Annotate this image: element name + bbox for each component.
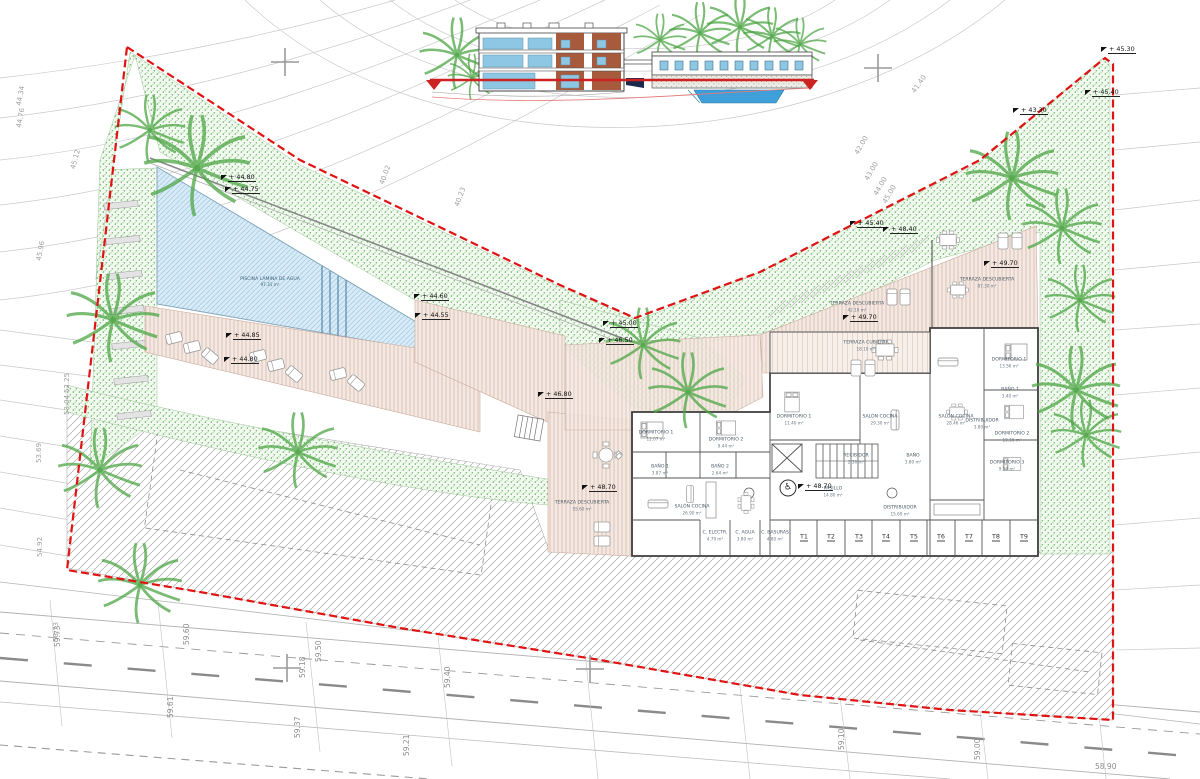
room-label: SALÓN COCINA26.90 m²: [674, 505, 709, 516]
elevation-marker: + 45.40: [850, 219, 885, 227]
elevation-marker: + 48.40: [883, 225, 918, 233]
room-label: SALÓN COCINA29.30 m²: [862, 415, 897, 426]
room-label: DORMITORIO 113.56 m²: [992, 358, 1027, 369]
room-area: 4.80 m²: [761, 536, 789, 541]
road-elevation-label: 59.10: [837, 729, 846, 750]
storage-unit-label: T8: [992, 533, 1000, 542]
storage-unit-label: T9: [1020, 533, 1028, 542]
level-value: + 44.80: [228, 173, 256, 182]
room-name: BAÑO 1: [1001, 388, 1019, 393]
level-value: + 44.55: [422, 311, 450, 320]
pool-area-text: 97.31 m²: [240, 282, 300, 287]
storage-unit-label: T6: [937, 533, 945, 542]
room-area: 29.30 m²: [862, 420, 897, 425]
level-flag-icon: [850, 221, 856, 226]
level-flag-icon: [226, 333, 232, 338]
wheelchair-icon: ♿: [780, 480, 797, 497]
room-name: BAÑO 1: [651, 465, 669, 470]
room-area: 3.40 m²: [1001, 393, 1019, 398]
room-area: 13.56 m²: [992, 363, 1027, 368]
room-area: 3.80 m²: [735, 536, 754, 541]
room-area: 9.00 m²: [990, 466, 1025, 471]
level-value: + 49.70: [991, 259, 1019, 268]
building-elevation-section: [420, 0, 827, 103]
room-label: BAÑO 13.87 m²: [651, 465, 669, 476]
level-flag-icon: [984, 261, 990, 266]
room-area: 12.07 m²: [639, 436, 674, 441]
elevation-marker: + 44.55: [415, 311, 450, 319]
room-area: 10.16 m²: [995, 437, 1030, 442]
room-label: BAÑO3.80 m²: [905, 454, 921, 465]
room-label: DISTRIBUIDOR3.80 m²: [965, 419, 998, 430]
level-value: + 46.80: [545, 390, 573, 399]
room-label: BAÑO 22.64 m²: [711, 465, 729, 476]
exterior-stair: [514, 415, 543, 441]
road-elevation-label: 59.50: [314, 641, 323, 662]
level-flag-icon: [798, 484, 804, 489]
level-value: + 49.70: [850, 313, 878, 322]
level-value: + 45.30: [1108, 45, 1136, 54]
room-name: TERRAZA DESCUBIERTA: [960, 278, 1015, 283]
room-name: C. BASURAS: [761, 531, 789, 536]
storage-unit-label: T3: [855, 533, 863, 542]
road-elevation-label: 59.73: [53, 626, 62, 647]
room-label: DORMITORIO 39.00 m²: [990, 461, 1025, 472]
elevation-marker: + 48.70: [582, 483, 617, 491]
room-name: TERRAZA CUBIERTA: [843, 341, 888, 346]
room-label: TERRAZA DESCUBIERTA87.30 m²: [960, 278, 1015, 289]
elevation-marker: + 44.75: [225, 185, 260, 193]
room-label: DISTRIBUIDOR15.60 m²: [883, 506, 916, 517]
room-name: DORMITORIO 1: [992, 358, 1027, 363]
road-elevation-label: 59.37: [293, 717, 302, 738]
room-name: DORMITORIO 1: [777, 415, 812, 420]
elevator: [772, 444, 802, 472]
room-name: DORMITORIO 2: [995, 432, 1030, 437]
elevation-marker: + 43.30: [1013, 106, 1048, 114]
room-area: 18.10 m²: [843, 346, 888, 351]
level-flag-icon: [415, 313, 421, 318]
level-value: + 46.50: [606, 336, 634, 345]
elevation-marker: + 48.70: [798, 482, 833, 490]
room-label: RECIBIDOR2.36 m²: [843, 454, 869, 465]
room-label: BAÑO 13.40 m²: [1001, 388, 1019, 399]
room-label: DORMITORIO 111.40 m²: [777, 415, 812, 426]
storage-unit-label: T7: [965, 533, 973, 542]
room-area: 15.60 m²: [883, 511, 916, 516]
storage-unit-label: T1: [800, 533, 808, 542]
room-area: 87.30 m²: [960, 283, 1015, 288]
room-name: TERRAZA DESCUBIERTA: [830, 302, 885, 307]
level-flag-icon: [414, 294, 420, 299]
room-label: TERRAZA DESCUBIERTA42.10 m²: [830, 302, 885, 313]
room-label: DORMITORIO 29.44 m²: [709, 438, 744, 449]
contour-label: 53.04: [63, 395, 71, 415]
level-value: + 45.00: [610, 319, 638, 328]
room-area: 2.64 m²: [711, 470, 729, 475]
room-name: C. AGUA: [735, 531, 754, 536]
room-label: C. BASURAS4.80 m²: [761, 531, 789, 542]
road-elevation-label: 59.18: [298, 657, 307, 678]
level-value: + 48.40: [890, 225, 918, 234]
elevation-marker: + 46.80: [538, 390, 573, 398]
storage-unit-label: T4: [882, 533, 890, 542]
storage-unit-label: T2: [827, 533, 835, 542]
level-value: + 48.70: [589, 483, 617, 492]
road-elevation-label: 59.21: [402, 735, 411, 756]
level-flag-icon: [1085, 90, 1091, 95]
level-flag-icon: [538, 392, 544, 397]
level-flag-icon: [599, 338, 605, 343]
room-name: DISTRIBUIDOR: [883, 506, 916, 511]
level-flag-icon: [221, 175, 227, 180]
room-name: DORMITORIO 3: [990, 461, 1025, 466]
room-label: DORMITORIO 210.16 m²: [995, 432, 1030, 443]
level-value: + 44.75: [232, 185, 260, 194]
level-value: + 48.70: [805, 482, 833, 491]
contour-label: 53.69: [35, 443, 43, 463]
room-label: TERRAZA CUBIERTA18.10 m²: [843, 341, 888, 352]
room-label: C. AGUA3.80 m²: [735, 531, 754, 542]
room-area: 3.80 m²: [905, 459, 921, 464]
room-name: TERRAZA DESCUBIERTA: [555, 501, 610, 506]
level-flag-icon: [1013, 108, 1019, 113]
level-value: + 45.40: [857, 219, 885, 228]
room-area: 2.36 m²: [843, 459, 869, 464]
elevation-marker: + 44.80: [224, 355, 259, 363]
elevation-marker: + 45.40: [1085, 88, 1120, 96]
level-value: + 44.60: [421, 292, 449, 301]
elevation-marker: + 46.50: [599, 336, 634, 344]
level-flag-icon: [225, 187, 231, 192]
room-label: TERRAZA DESCUBIERTA55.60 m²: [555, 501, 610, 512]
level-flag-icon: [582, 485, 588, 490]
road-elevation-label: 59.00: [973, 739, 982, 760]
room-area: 3.87 m²: [651, 470, 669, 475]
level-flag-icon: [1101, 47, 1107, 52]
room-area: 42.10 m²: [830, 307, 885, 312]
room-name: DORMITORIO 2: [709, 438, 744, 443]
room-area: 3.80 m²: [965, 424, 998, 429]
level-flag-icon: [843, 315, 849, 320]
contour-label: 52.25: [63, 373, 71, 393]
room-name: DORMITORIO 1: [639, 431, 674, 436]
room-name: RECIBIDOR: [843, 454, 869, 459]
room-label: C. ELECTR.4.70 m²: [703, 531, 728, 542]
room-area: 26.90 m²: [674, 510, 709, 515]
room-area: 14.80 m²: [823, 492, 842, 497]
storage-unit-label: T5: [910, 533, 918, 542]
room-name: BAÑO 2: [711, 465, 729, 470]
road-elevation-label: 59.60: [182, 624, 191, 645]
elevation-marker: + 49.70: [984, 259, 1019, 267]
room-label: DORMITORIO 112.07 m²: [639, 431, 674, 442]
room-name: BAÑO: [906, 454, 919, 459]
pool-label: PISCINA LÁMINA DE AGUA 97.31 m²: [240, 277, 300, 287]
elevation-marker: + 45.30: [1101, 45, 1136, 53]
room-name: SALÓN COCINA: [862, 415, 897, 420]
site-plan: PISCINA LÁMINA DE AGUA 97.31 m² ♿ + 44.8…: [0, 0, 1200, 779]
level-flag-icon: [883, 227, 889, 232]
room-name: DISTRIBUIDOR: [965, 419, 998, 424]
room-area: 11.40 m²: [777, 420, 812, 425]
room-area: 55.60 m²: [555, 506, 610, 511]
level-flag-icon: [224, 357, 230, 362]
road-elevation-label: 59.61: [166, 697, 175, 718]
elevation-marker: + 44.85: [226, 331, 261, 339]
level-value: + 45.40: [1092, 88, 1120, 97]
room-name: SALÓN COCINA: [674, 505, 709, 510]
elevation-marker: + 49.70: [843, 313, 878, 321]
room-area: 9.44 m²: [709, 443, 744, 448]
elevation-marker: + 45.00: [603, 319, 638, 327]
room-area: 4.70 m²: [703, 536, 728, 541]
level-value: + 44.85: [233, 331, 261, 340]
site-plan-drawing: [0, 0, 1200, 779]
road-elevation-label: 58.90: [1095, 762, 1116, 771]
contour-label: 54.92: [36, 537, 44, 557]
elevation-marker: + 44.60: [414, 292, 449, 300]
road-elevation-label: 59.40: [443, 667, 452, 688]
elevation-marker: + 44.80: [221, 173, 256, 181]
level-flag-icon: [603, 321, 609, 326]
room-name: C. ELECTR.: [703, 531, 728, 536]
level-value: + 43.30: [1020, 106, 1048, 115]
level-value: + 44.80: [231, 355, 259, 364]
